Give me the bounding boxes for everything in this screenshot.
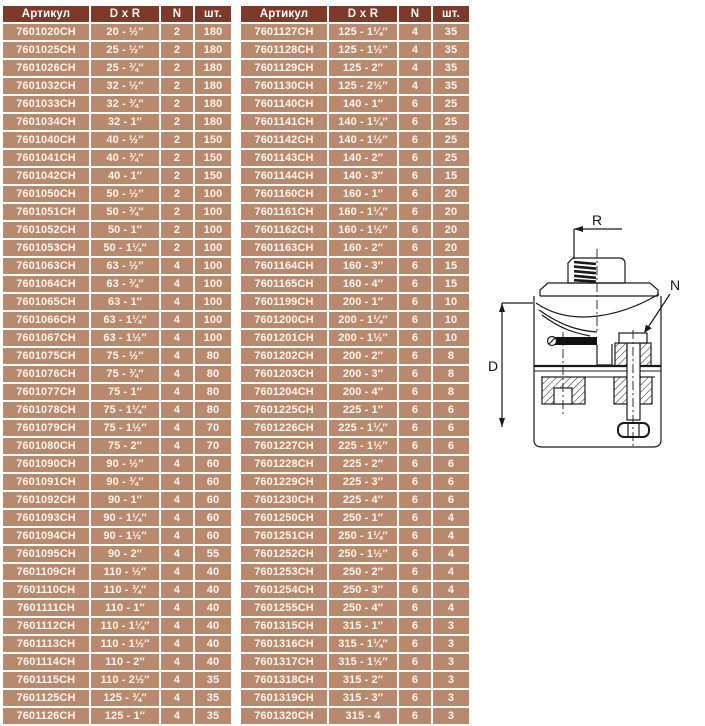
dxr-cell: 140 - 3″ <box>329 168 397 184</box>
dxr-cell: 90 - 1″ <box>91 492 159 508</box>
table-row: 7601032CH32 - ½″2180 <box>3 78 231 94</box>
table-row: 7601093CH90 - 1¼″460 <box>3 510 231 526</box>
qty-cell: 20 <box>433 186 469 202</box>
n-cell: 6 <box>399 492 431 508</box>
article-cell: 7601140CH <box>241 96 327 112</box>
table-row: 7601230CH225 - 4″66 <box>241 492 469 508</box>
qty-cell: 180 <box>195 96 231 112</box>
dxr-cell: 50 - 1″ <box>91 222 159 238</box>
qty-cell: 180 <box>195 114 231 130</box>
n-cell: 6 <box>399 294 431 310</box>
dxr-cell: 75 - ¾″ <box>91 366 159 382</box>
table-row: 7601255CH250 - 4″64 <box>241 600 469 616</box>
header-row: Артикул D x R N шт. <box>241 6 469 22</box>
article-cell: 7601320CH <box>241 708 327 724</box>
table-row: 7601113CH110 - 1½″440 <box>3 636 231 652</box>
dxr-cell: 250 - 4″ <box>329 600 397 616</box>
n-cell: 6 <box>399 600 431 616</box>
dxr-cell: 125 - ¾″ <box>91 690 159 706</box>
n-cell: 6 <box>399 654 431 670</box>
table-row: 7601026CH25 - ¾″2180 <box>3 60 231 76</box>
article-cell: 7601225CH <box>241 402 327 418</box>
dxr-cell: 40 - 1″ <box>91 168 159 184</box>
article-cell: 7601228CH <box>241 456 327 472</box>
qty-cell: 35 <box>195 708 231 724</box>
qty-cell: 20 <box>433 204 469 220</box>
bore-step <box>597 344 612 365</box>
article-cell: 7601080CH <box>3 438 89 454</box>
qty-cell: 3 <box>433 636 469 652</box>
article-cell: 7601229CH <box>241 474 327 490</box>
article-cell: 7601042CH <box>3 168 89 184</box>
table-row: 7601080CH75 - 2″470 <box>3 438 231 454</box>
table-row: 7601063CH63 - ½″4100 <box>3 258 231 274</box>
dxr-cell: 25 - ½″ <box>91 42 159 58</box>
n-cell: 4 <box>161 690 193 706</box>
table-row: 7601050CH50 - ½″2100 <box>3 186 231 202</box>
n-cell: 4 <box>161 330 193 346</box>
dxr-cell: 32 - ¾″ <box>91 96 159 112</box>
table-row: 7601078CH75 - 1¼″480 <box>3 402 231 418</box>
qty-cell: 25 <box>433 96 469 112</box>
article-cell: 7601095CH <box>3 546 89 562</box>
article-cell: 7601203CH <box>241 366 327 382</box>
upper-boss-right-hatch <box>640 343 651 366</box>
dxr-cell: 110 - ¾″ <box>91 582 159 598</box>
qty-cell: 6 <box>433 438 469 454</box>
n-cell: 4 <box>161 402 193 418</box>
table-row: 7601020CH20 - ½″2180 <box>3 24 231 40</box>
article-cell: 7601063CH <box>3 258 89 274</box>
dxr-cell: 90 - ½″ <box>91 456 159 472</box>
qty-cell: 20 <box>433 222 469 238</box>
qty-cell: 4 <box>433 600 469 616</box>
n-cell: 4 <box>161 294 193 310</box>
table-row: 7601052CH50 - 1″2100 <box>3 222 231 238</box>
dxr-cell: 40 - ½″ <box>91 132 159 148</box>
article-cell: 7601092CH <box>3 492 89 508</box>
qty-cell: 80 <box>195 348 231 364</box>
article-cell: 7601094CH <box>3 528 89 544</box>
table-row: 7601252CH250 - 1½″64 <box>241 546 469 562</box>
qty-cell: 4 <box>433 564 469 580</box>
n-cell: 2 <box>161 132 193 148</box>
article-cell: 7601091CH <box>3 474 89 490</box>
n-cell: 6 <box>399 456 431 472</box>
qty-cell: 8 <box>433 366 469 382</box>
dxr-cell: 200 - 1½″ <box>329 330 397 346</box>
table-row: 7601144CH140 - 3″615 <box>241 168 469 184</box>
article-cell: 7601202CH <box>241 348 327 364</box>
clamp-saddle-diagram: R D N <box>478 190 705 468</box>
n-cell: 6 <box>399 132 431 148</box>
n-cell: 4 <box>399 60 431 76</box>
n-cell: 2 <box>161 240 193 256</box>
n-cell: 4 <box>161 258 193 274</box>
n-cell: 4 <box>399 78 431 94</box>
n-cell: 2 <box>161 60 193 76</box>
qty-cell: 3 <box>433 672 469 688</box>
dxr-cell: 160 - 2″ <box>329 240 397 256</box>
table-row: 7601126CH125 - 1″435 <box>3 708 231 724</box>
qty-cell: 100 <box>195 222 231 238</box>
dxr-cell: 63 - ½″ <box>91 258 159 274</box>
table-row: 7601040CH40 - ½″2150 <box>3 132 231 148</box>
table-row: 7601315CH315 - 1″63 <box>241 618 469 634</box>
qty-cell: 4 <box>433 510 469 526</box>
table-row: 7601077CH75 - 1″480 <box>3 384 231 400</box>
table-row: 7601075CH75 - ½″480 <box>3 348 231 364</box>
n-cell: 6 <box>399 96 431 112</box>
dim-r <box>574 226 622 259</box>
spec-table-right: Артикул D x R N шт. 7601127CH125 - 1¼″43… <box>239 4 471 726</box>
n-cell: 4 <box>161 546 193 562</box>
n-cell: 6 <box>399 582 431 598</box>
table-row: 7601250CH250 - 1″64 <box>241 510 469 526</box>
n-cell: 6 <box>399 150 431 166</box>
article-cell: 7601041CH <box>3 150 89 166</box>
n-cell: 4 <box>161 528 193 544</box>
article-cell: 7601079CH <box>3 420 89 436</box>
qty-cell: 100 <box>195 258 231 274</box>
qty-cell: 10 <box>433 312 469 328</box>
table-row: 7601114CH110 - 2″440 <box>3 654 231 670</box>
table-row: 7601112CH110 - 1¼″440 <box>3 618 231 634</box>
dxr-cell: 50 - ¾″ <box>91 204 159 220</box>
dxr-cell: 63 - 1¼″ <box>91 312 159 328</box>
dxr-cell: 63 - 1½″ <box>91 330 159 346</box>
qty-cell: 80 <box>195 402 231 418</box>
dxr-cell: 225 - 1¼″ <box>329 420 397 436</box>
article-cell: 7601067CH <box>3 330 89 346</box>
dxr-cell: 90 - 2″ <box>91 546 159 562</box>
table-row: 7601095CH90 - 2″455 <box>3 546 231 562</box>
article-cell: 7601254CH <box>241 582 327 598</box>
dxr-cell: 315 - 3″ <box>329 690 397 706</box>
table-row: 7601110CH110 - ¾″440 <box>3 582 231 598</box>
table-row: 7601042CH40 - 1″2150 <box>3 168 231 184</box>
table-row: 7601254CH250 - 3″64 <box>241 582 469 598</box>
article-cell: 7601051CH <box>3 204 89 220</box>
n-cell: 4 <box>161 654 193 670</box>
article-cell: 7601126CH <box>3 708 89 724</box>
dxr-cell: 315 - 2″ <box>329 672 397 688</box>
n-cell: 6 <box>399 330 431 346</box>
qty-cell: 6 <box>433 492 469 508</box>
article-cell: 7601204CH <box>241 384 327 400</box>
qty-cell: 6 <box>433 402 469 418</box>
article-cell: 7601112CH <box>3 618 89 634</box>
dxr-cell: 20 - ½″ <box>91 24 159 40</box>
article-cell: 7601025CH <box>3 42 89 58</box>
qty-cell: 150 <box>195 132 231 148</box>
table-row: 7601162CH160 - 1½″620 <box>241 222 469 238</box>
col-header-qty: шт. <box>433 6 469 22</box>
article-cell: 7601252CH <box>241 546 327 562</box>
qty-cell: 150 <box>195 168 231 184</box>
qty-cell: 25 <box>433 132 469 148</box>
table-row: 7601204CH200 - 4″68 <box>241 384 469 400</box>
article-cell: 7601251CH <box>241 528 327 544</box>
dxr-cell: 125 - 1½″ <box>329 42 397 58</box>
article-cell: 7601127CH <box>241 24 327 40</box>
threaded-outlet-icon <box>568 258 625 283</box>
col-header-qty: шт. <box>195 6 231 22</box>
table-row: 7601320CH315 - 463 <box>241 708 469 724</box>
table-row: 7601319CH315 - 3″63 <box>241 690 469 706</box>
article-cell: 7601255CH <box>241 600 327 616</box>
article-cell: 7601199CH <box>241 294 327 310</box>
article-cell: 7601200CH <box>241 312 327 328</box>
dxr-cell: 250 - 3″ <box>329 582 397 598</box>
qty-cell: 180 <box>195 42 231 58</box>
article-cell: 7601128CH <box>241 42 327 58</box>
n-cell: 2 <box>161 168 193 184</box>
qty-cell: 3 <box>433 708 469 724</box>
hex-nut-icon <box>618 423 649 437</box>
dxr-cell: 250 - 1″ <box>329 510 397 526</box>
dxr-cell: 90 - ¾″ <box>91 474 159 490</box>
article-cell: 7601129CH <box>241 60 327 76</box>
table-row: 7601161CH160 - 1¼″620 <box>241 204 469 220</box>
n-cell: 6 <box>399 114 431 130</box>
dim-d <box>499 303 533 427</box>
article-cell: 7601250CH <box>241 510 327 526</box>
dxr-cell: 50 - 1¼″ <box>91 240 159 256</box>
dxr-cell: 75 - ½″ <box>91 348 159 364</box>
n-cell: 4 <box>161 312 193 328</box>
qty-cell: 35 <box>433 42 469 58</box>
article-cell: 7601125CH <box>3 690 89 706</box>
gasket-bar <box>548 337 598 346</box>
n-cell: 6 <box>399 618 431 634</box>
table-row: 7601129CH125 - 2″435 <box>241 60 469 76</box>
table-row: 7601064CH63 - ¾″4100 <box>3 276 231 292</box>
dxr-cell: 200 - 4″ <box>329 384 397 400</box>
n-cell: 6 <box>399 222 431 238</box>
qty-cell: 35 <box>195 690 231 706</box>
table-row: 7601201CH200 - 1½″610 <box>241 330 469 346</box>
table-row: 7601141CH140 - 1¼″625 <box>241 114 469 130</box>
qty-cell: 100 <box>195 240 231 256</box>
article-cell: 7601114CH <box>3 654 89 670</box>
dxr-cell: 315 - 4 <box>329 708 397 724</box>
qty-cell: 150 <box>195 150 231 166</box>
qty-cell: 6 <box>433 474 469 490</box>
table-row: 7601200CH200 - 1¼″610 <box>241 312 469 328</box>
article-cell: 7601230CH <box>241 492 327 508</box>
dxr-cell: 160 - 1″ <box>329 186 397 202</box>
qty-cell: 15 <box>433 168 469 184</box>
n-cell: 2 <box>161 204 193 220</box>
bolt-n-label: N <box>670 277 680 293</box>
article-cell: 7601109CH <box>3 564 89 580</box>
article-cell: 7601317CH <box>241 654 327 670</box>
n-cell: 6 <box>399 348 431 364</box>
table-row: 7601165CH160 - 4″615 <box>241 276 469 292</box>
spec-table-left-body: 7601020CH20 - ½″21807601025CH25 - ½″2180… <box>3 24 231 724</box>
dxr-cell: 125 - 2½″ <box>329 78 397 94</box>
n-cell: 4 <box>161 672 193 688</box>
qty-cell: 6 <box>433 456 469 472</box>
n-cell: 2 <box>161 186 193 202</box>
n-cell: 4 <box>161 420 193 436</box>
table-row: 7601253CH250 - 2″64 <box>241 564 469 580</box>
dxr-cell: 75 - 2″ <box>91 438 159 454</box>
article-cell: 7601318CH <box>241 672 327 688</box>
qty-cell: 3 <box>433 690 469 706</box>
n-cell: 4 <box>161 276 193 292</box>
article-cell: 7601142CH <box>241 132 327 148</box>
n-cell: 4 <box>161 438 193 454</box>
col-header-article: Артикул <box>241 6 327 22</box>
col-header-n: N <box>399 6 431 22</box>
qty-cell: 4 <box>433 528 469 544</box>
qty-cell: 40 <box>195 564 231 580</box>
article-cell: 7601115CH <box>3 672 89 688</box>
n-cell: 4 <box>161 564 193 580</box>
n-cell: 2 <box>161 114 193 130</box>
article-cell: 7601144CH <box>241 168 327 184</box>
article-cell: 7601090CH <box>3 456 89 472</box>
n-cell: 6 <box>399 474 431 490</box>
dxr-cell: 75 - 1″ <box>91 384 159 400</box>
qty-cell: 60 <box>195 492 231 508</box>
dxr-cell: 160 - 1½″ <box>329 222 397 238</box>
n-cell: 6 <box>399 402 431 418</box>
article-cell: 7601319CH <box>241 690 327 706</box>
dxr-cell: 140 - 1½″ <box>329 132 397 148</box>
n-cell: 6 <box>399 186 431 202</box>
n-cell: 2 <box>161 42 193 58</box>
dim-r-label: R <box>592 212 602 228</box>
article-cell: 7601076CH <box>3 366 89 382</box>
n-cell: 6 <box>399 312 431 328</box>
table-row: 7601076CH75 - ¾″480 <box>3 366 231 382</box>
n-cell: 6 <box>399 708 431 724</box>
dxr-cell: 250 - 2″ <box>329 564 397 580</box>
table-row: 7601163CH160 - 2″620 <box>241 240 469 256</box>
qty-cell: 180 <box>195 24 231 40</box>
dxr-cell: 90 - 1¼″ <box>91 510 159 526</box>
dxr-cell: 110 - 2½″ <box>91 672 159 688</box>
table-row: 7601251CH250 - 1¼″64 <box>241 528 469 544</box>
dxr-cell: 50 - ½″ <box>91 186 159 202</box>
upper-boss-left-hatch <box>615 343 627 366</box>
dxr-cell: 140 - 1¼″ <box>329 114 397 130</box>
dxr-cell: 125 - 1¼″ <box>329 24 397 40</box>
table-row: 7601227CH225 - 1½″66 <box>241 438 469 454</box>
n-cell: 6 <box>399 672 431 688</box>
qty-cell: 100 <box>195 276 231 292</box>
qty-cell: 3 <box>433 654 469 670</box>
table-row: 7601111CH110 - 1″440 <box>3 600 231 616</box>
qty-cell: 80 <box>195 384 231 400</box>
n-cell: 4 <box>161 600 193 616</box>
dxr-cell: 125 - 2″ <box>329 60 397 76</box>
n-cell: 6 <box>399 546 431 562</box>
article-cell: 7601201CH <box>241 330 327 346</box>
qty-cell: 35 <box>433 78 469 94</box>
table-row: 7601092CH90 - 1″460 <box>3 492 231 508</box>
dxr-cell: 200 - 2″ <box>329 348 397 364</box>
dxr-cell: 315 - 1″ <box>329 618 397 634</box>
dxr-cell: 225 - 3″ <box>329 474 397 490</box>
article-cell: 7601040CH <box>3 132 89 148</box>
article-cell: 7601130CH <box>241 78 327 94</box>
article-cell: 7601066CH <box>3 312 89 328</box>
table-row: 7601316CH315 - 1¼″63 <box>241 636 469 652</box>
qty-cell: 25 <box>433 114 469 130</box>
saddle-arcs <box>536 294 659 336</box>
qty-cell: 40 <box>195 636 231 652</box>
dxr-cell: 63 - 1″ <box>91 294 159 310</box>
table-row: 7601125CH125 - ¾″435 <box>3 690 231 706</box>
qty-cell: 15 <box>433 276 469 292</box>
n-cell: 4 <box>161 348 193 364</box>
dxr-cell: 140 - 2″ <box>329 150 397 166</box>
n-cell: 6 <box>399 240 431 256</box>
n-cell: 4 <box>161 366 193 382</box>
qty-cell: 100 <box>195 204 231 220</box>
table-row: 7601115CH110 - 2½″435 <box>3 672 231 688</box>
col-header-article: Артикул <box>3 6 89 22</box>
qty-cell: 40 <box>195 618 231 634</box>
article-cell: 7601065CH <box>3 294 89 310</box>
spec-table-left: Артикул D x R N шт. 7601020CH20 - ½″2180… <box>1 4 233 726</box>
article-cell: 7601141CH <box>241 114 327 130</box>
table-row: 7601226CH225 - 1¼″66 <box>241 420 469 436</box>
n-cell: 6 <box>399 510 431 526</box>
qty-cell: 40 <box>195 654 231 670</box>
n-cell: 2 <box>161 24 193 40</box>
qty-cell: 100 <box>195 294 231 310</box>
n-cell: 6 <box>399 276 431 292</box>
n-cell: 6 <box>399 690 431 706</box>
dxr-cell: 200 - 1¼″ <box>329 312 397 328</box>
table-row: 7601127CH125 - 1¼″435 <box>241 24 469 40</box>
article-cell: 7601162CH <box>241 222 327 238</box>
qty-cell: 8 <box>433 348 469 364</box>
n-cell: 4 <box>161 510 193 526</box>
table-row: 7601109CH110 - ½″440 <box>3 564 231 580</box>
n-cell: 6 <box>399 366 431 382</box>
n-cell: 4 <box>399 42 431 58</box>
n-cell: 4 <box>161 636 193 652</box>
n-cell: 6 <box>399 258 431 274</box>
clamp-drawing <box>499 226 670 447</box>
qty-cell: 40 <box>195 600 231 616</box>
n-cell: 4 <box>161 474 193 490</box>
table-row: 7601065CH63 - 1″4100 <box>3 294 231 310</box>
dxr-cell: 140 - 1″ <box>329 96 397 112</box>
dxr-cell: 32 - ½″ <box>91 78 159 94</box>
dxr-cell: 200 - 3″ <box>329 366 397 382</box>
n-cell: 4 <box>161 456 193 472</box>
qty-cell: 25 <box>433 150 469 166</box>
qty-cell: 100 <box>195 312 231 328</box>
dxr-cell: 110 - 1¼″ <box>91 618 159 634</box>
article-cell: 7601253CH <box>241 564 327 580</box>
dxr-cell: 110 - ½″ <box>91 564 159 580</box>
table-row: 7601199CH200 - 1″610 <box>241 294 469 310</box>
article-cell: 7601143CH <box>241 150 327 166</box>
n-cell: 4 <box>161 618 193 634</box>
dxr-cell: 40 - ¾″ <box>91 150 159 166</box>
article-cell: 7601164CH <box>241 258 327 274</box>
article-cell: 7601064CH <box>3 276 89 292</box>
qty-cell: 100 <box>195 186 231 202</box>
